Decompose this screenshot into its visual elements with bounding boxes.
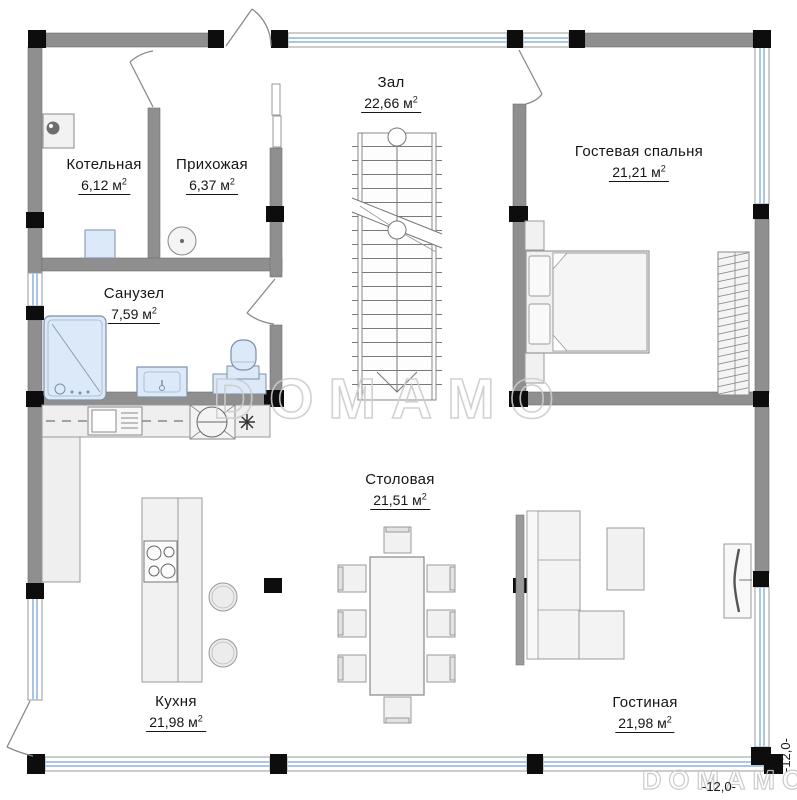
boiler	[43, 114, 74, 148]
room-name: Гостевая спальня	[575, 143, 703, 160]
room-label-hall: Зал 22,66 м2	[361, 74, 421, 111]
column	[753, 391, 769, 407]
column	[26, 212, 44, 228]
kitchen-sink	[88, 407, 142, 435]
sliding-door	[272, 84, 281, 147]
wall-left-2	[28, 228, 42, 273]
room-label-living: Гостиная 21,98 м2	[612, 694, 677, 731]
room-name: Прихожая	[176, 156, 248, 173]
column	[264, 578, 282, 593]
kitchen-fixtures	[42, 405, 270, 682]
window-bathroom	[28, 273, 42, 306]
column	[509, 206, 528, 222]
wall-top-left	[46, 33, 208, 47]
column	[28, 30, 46, 48]
column	[270, 754, 287, 774]
wall-left-3	[28, 320, 42, 395]
watermark-center: DOMAMO	[213, 366, 569, 432]
room-name: Зал	[361, 74, 421, 91]
hallway-pouf	[168, 227, 196, 255]
room-label-dining: Столовая 21,51 м2	[365, 471, 434, 508]
staircase	[352, 128, 442, 400]
room-area: 6,12 м2	[78, 177, 130, 195]
wall-right-2	[755, 407, 769, 573]
column	[26, 583, 44, 599]
wardrobe	[718, 252, 749, 395]
column	[271, 30, 288, 48]
wall-left-1	[28, 47, 42, 214]
dining-table	[370, 557, 424, 695]
wall-right-1	[755, 219, 769, 393]
column	[753, 204, 769, 219]
room-label-guest-bedroom: Гостевая спальня 21,21 м2	[575, 143, 703, 180]
dimension-right: -12,0-	[778, 738, 793, 772]
bathroom-door	[247, 279, 275, 324]
water-tank	[85, 230, 115, 258]
room-label-boiler: Котельная 6,12 м2	[66, 156, 141, 193]
column	[753, 30, 771, 48]
floor-plan: Котельная 6,12 м2 Прихожая 6,37 м2 Зал 2…	[0, 0, 797, 800]
nightstand-top	[525, 221, 544, 250]
room-name: Санузел	[104, 285, 165, 302]
bedroom-door	[519, 50, 542, 104]
window-bottom-2	[287, 757, 527, 771]
column	[507, 30, 523, 48]
column	[27, 754, 45, 774]
media-panel	[516, 515, 524, 665]
room-area: 22,66 м2	[361, 95, 421, 113]
entrance-door	[226, 9, 271, 46]
window-living-right	[755, 587, 769, 747]
wall-boiler-hall-divider	[148, 108, 160, 265]
room-area: 21,51 м2	[370, 492, 430, 510]
bed	[526, 251, 649, 353]
column	[26, 391, 44, 407]
boiler-room-door	[130, 51, 153, 107]
tv-stand	[724, 544, 752, 618]
window-top-hall	[288, 33, 507, 47]
living-room-furniture	[516, 511, 752, 665]
room-name: Гостиная	[612, 694, 677, 711]
column	[266, 206, 284, 222]
room-name: Котельная	[66, 156, 141, 173]
bar-stools	[209, 583, 237, 667]
kitchen-exterior-door	[7, 701, 33, 756]
shower	[44, 316, 106, 400]
column	[26, 306, 44, 320]
wall-left-4	[28, 407, 42, 585]
dimension-bottom: -12,0-	[702, 779, 736, 794]
room-area: 6,37 м2	[186, 177, 238, 195]
room-name: Столовая	[365, 471, 434, 488]
kitchen-island	[142, 498, 202, 682]
room-area: 21,98 м2	[615, 715, 675, 733]
coffee-table	[607, 528, 644, 590]
window-bottom-1	[45, 757, 270, 771]
column	[753, 571, 769, 587]
column	[569, 30, 585, 48]
window-top-bedroom	[523, 33, 569, 47]
room-label-bathroom: Санузел 7,59 м2	[104, 285, 165, 322]
wall-top-right	[585, 33, 753, 47]
room-area: 21,21 м2	[609, 164, 669, 182]
wall-bedroom-left	[513, 104, 526, 398]
wall-hallway-bottom	[42, 258, 282, 271]
window-kitchen-door	[28, 597, 42, 700]
room-label-kitchen: Кухня 21,98 м2	[146, 693, 206, 730]
room-label-hallway: Прихожая 6,37 м2	[176, 156, 248, 193]
column	[751, 747, 771, 765]
dining-set	[338, 527, 455, 723]
room-area: 21,98 м2	[146, 714, 206, 732]
washbasin	[137, 367, 187, 397]
window-bedroom-right	[755, 47, 769, 204]
room-area: 7,59 м2	[108, 306, 160, 324]
room-name: Кухня	[146, 693, 206, 710]
column	[208, 30, 224, 48]
column	[527, 754, 543, 774]
